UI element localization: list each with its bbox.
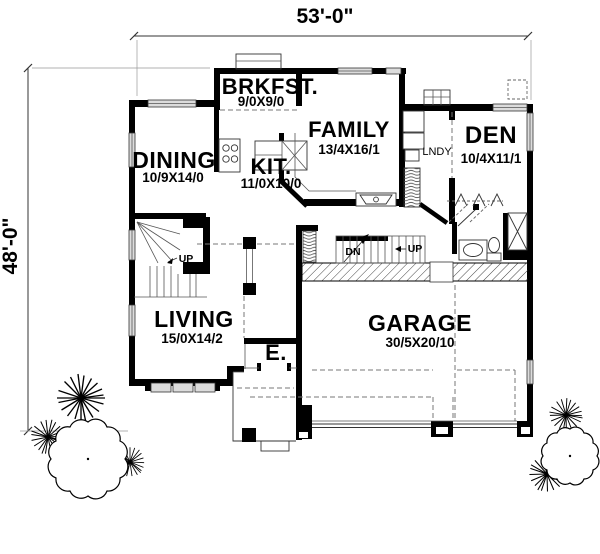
room-size-family: 13/4X16/1 xyxy=(318,142,380,157)
floor-plan-canvas: 53'-0" 48'-0" xyxy=(0,0,600,554)
porch-column xyxy=(242,428,256,442)
toilet xyxy=(489,238,500,253)
dryer xyxy=(403,133,424,149)
chimney-bay xyxy=(424,90,450,105)
room-label-den: DEN xyxy=(465,122,517,149)
stair-label-up-right: UP xyxy=(408,243,423,255)
laundry-appliances xyxy=(403,111,424,161)
stairs-left xyxy=(134,222,207,297)
room-size-living: 15/0X14/2 xyxy=(161,331,223,346)
shrub xyxy=(57,374,105,422)
room-label-living: LIVING xyxy=(154,306,234,332)
garage-doors xyxy=(299,421,530,438)
stair-label-up-left: UP xyxy=(179,253,194,265)
brkfst-bay-window xyxy=(236,54,281,69)
room-size-dining: 10/9X14/0 xyxy=(142,170,204,185)
room-size-brkfst: 9/0X9/0 xyxy=(238,94,285,109)
porch-step xyxy=(261,441,289,451)
room-size-den: 10/4X11/1 xyxy=(461,151,522,166)
range xyxy=(219,139,240,172)
garage-door-step xyxy=(430,262,453,282)
room-label-garage: GARAGE xyxy=(368,310,472,336)
hall-columns xyxy=(247,249,253,283)
landscaping xyxy=(25,374,598,499)
washer xyxy=(403,111,424,132)
room-size-garage: 30/5X20/10 xyxy=(385,335,454,350)
room-label-entry: E. xyxy=(265,340,287,365)
roof-skylight-outline xyxy=(508,80,527,99)
width-dimension-label: 53'-0" xyxy=(297,5,354,28)
room-label-family: FAMILY xyxy=(308,117,390,142)
room-label-laundry: LNDY xyxy=(422,146,452,158)
room-size-kitchen: 11/0X10/0 xyxy=(241,176,302,191)
fireplace xyxy=(404,168,420,207)
height-dimension-label: 48'-0" xyxy=(0,218,22,275)
floor-plan: 53'-0" 48'-0" xyxy=(0,0,600,554)
stair-label-dn: DN xyxy=(345,246,360,258)
